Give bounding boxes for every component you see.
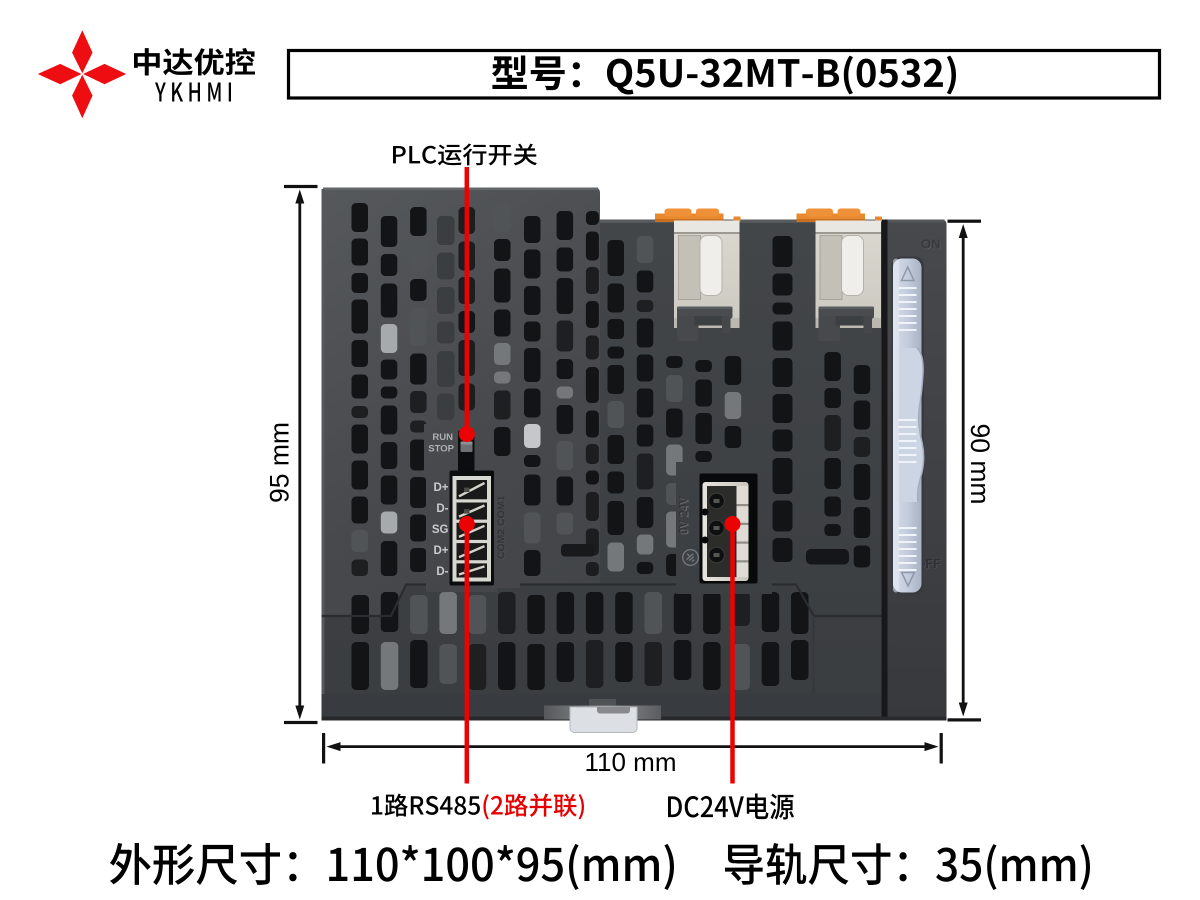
svg-text:95 mm: 95 mm	[265, 422, 295, 503]
svg-text:0V 24V: 0V 24V	[679, 496, 691, 534]
svg-text:D-: D-	[436, 566, 448, 578]
svg-text:COM2 COM1: COM2 COM1	[495, 496, 507, 560]
svg-text:110 mm: 110 mm	[585, 747, 677, 777]
svg-text:STOP: STOP	[428, 444, 454, 455]
svg-text:RUN: RUN	[432, 432, 453, 443]
svg-text:D+: D+	[433, 545, 448, 557]
svg-text:D-: D-	[436, 503, 448, 515]
svg-text:ON: ON	[921, 237, 941, 252]
svg-text:90 mm: 90 mm	[965, 424, 995, 505]
svg-text:SG: SG	[432, 524, 449, 536]
svg-text:D+: D+	[433, 482, 448, 494]
